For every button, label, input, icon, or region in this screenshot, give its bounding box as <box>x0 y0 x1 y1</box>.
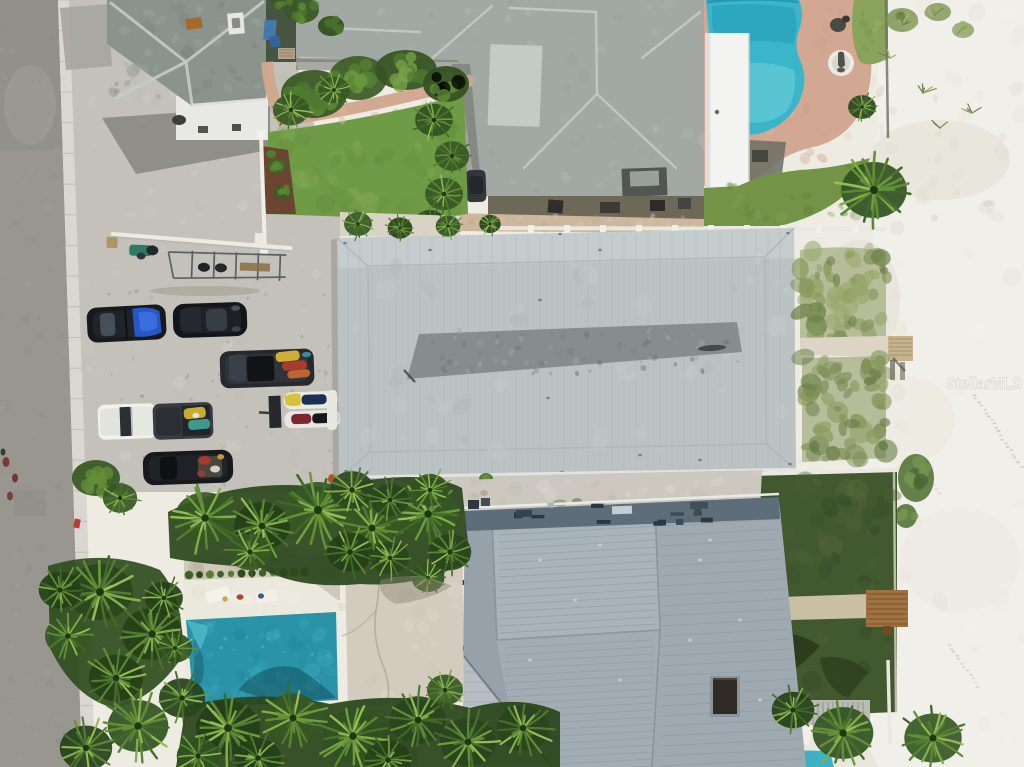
svg-text:StellarMLS: StellarMLS <box>946 374 1022 393</box>
